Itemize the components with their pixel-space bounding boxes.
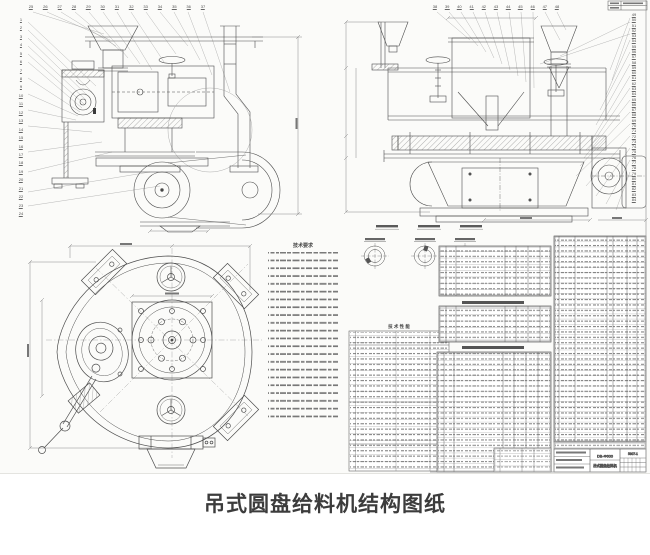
dimension-lines xyxy=(344,16,648,222)
technical-notes: 技术要求 xyxy=(268,242,338,420)
title-block-name: 吊式圆盘给料机 xyxy=(593,463,617,468)
sectional-view xyxy=(344,12,648,229)
discharge-spout xyxy=(139,436,215,468)
side-elevation-view xyxy=(28,12,302,233)
parts-table-right xyxy=(554,236,646,449)
handwheel xyxy=(157,263,185,291)
hopper xyxy=(541,26,577,136)
drawing-sheet: 技术要求 xyxy=(0,0,650,474)
handwheel xyxy=(157,396,185,424)
plan-view xyxy=(27,243,262,468)
handwheel xyxy=(159,57,185,79)
view-labels xyxy=(375,225,483,229)
drive-housing xyxy=(410,158,588,222)
gear-cluster xyxy=(39,316,135,453)
spec-table: 技 术 性 能 xyxy=(349,323,449,471)
handwheel xyxy=(544,59,568,96)
notes-title: 技术要求 xyxy=(293,242,314,249)
title-block: DB-Φ600 吊式圆盘给料机 5307-1 xyxy=(554,449,646,472)
parts-table-left xyxy=(437,246,551,472)
hopper xyxy=(88,26,138,71)
gearbox-motor xyxy=(591,148,646,208)
title-block-model: DB-Φ600 xyxy=(597,455,613,459)
handwheel xyxy=(426,57,450,102)
revision-table xyxy=(494,448,551,472)
feeder-head xyxy=(62,61,104,122)
motor-pulley xyxy=(134,162,190,218)
title-block-drawing-no: 5307-1 xyxy=(628,452,638,456)
blueprint-canvas: 技术要求 xyxy=(0,0,650,473)
mount-bracket xyxy=(81,249,258,440)
stamp-box xyxy=(608,1,647,10)
spec-table-title: 技 术 性 能 xyxy=(388,323,410,330)
caption: 吊式圆盘给料机结构图纸 xyxy=(0,488,650,518)
dimension-lines xyxy=(148,35,302,233)
page: 技术要求 xyxy=(0,0,650,555)
